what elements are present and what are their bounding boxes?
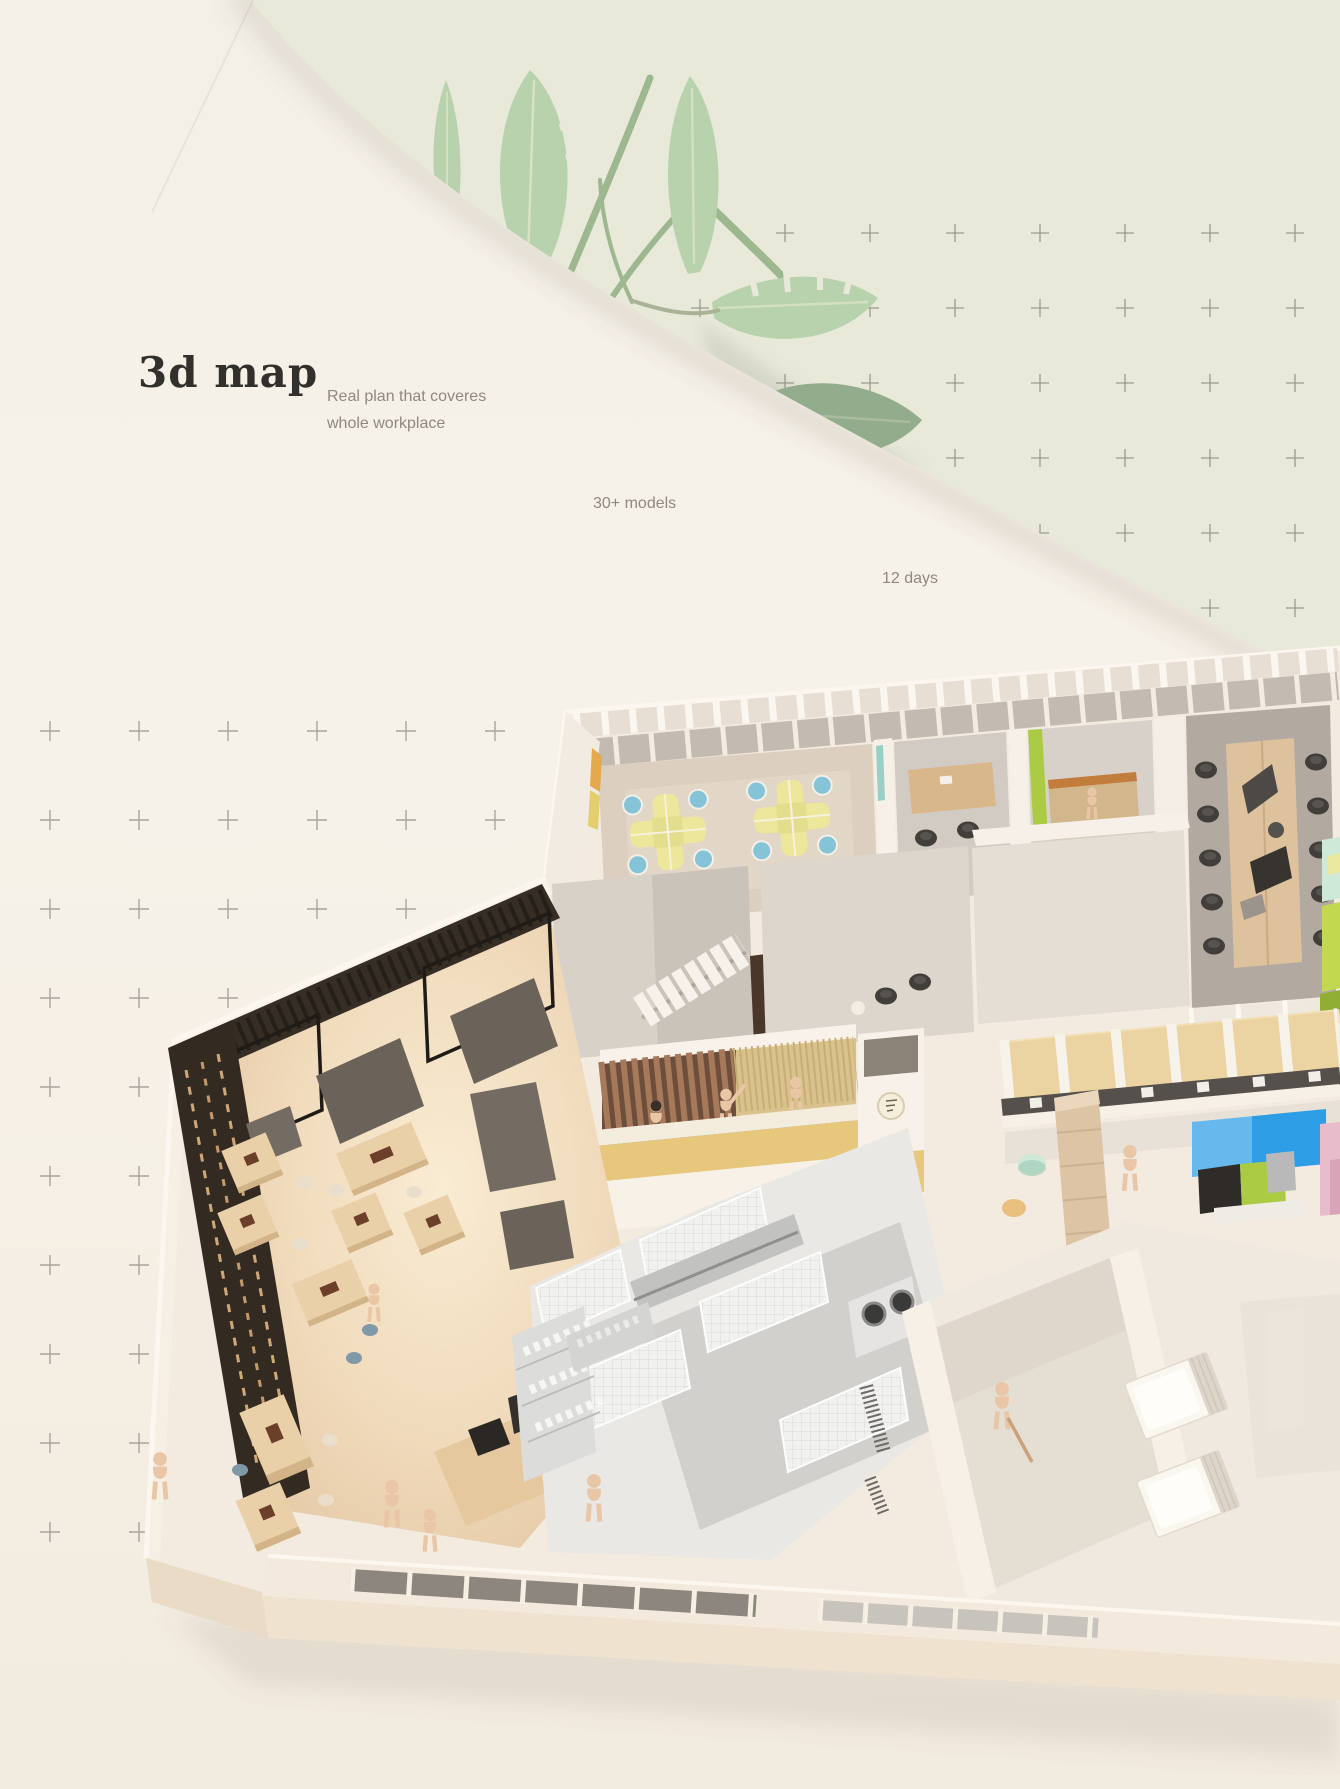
floorplan-3d-render bbox=[146, 648, 1340, 1760]
sage-background-shape bbox=[235, 0, 1340, 700]
stat-models: 30+ models bbox=[593, 495, 676, 513]
diagonal-hairline bbox=[152, 0, 258, 212]
peach-pouf bbox=[1002, 1199, 1026, 1217]
yellow-accent-wall bbox=[588, 790, 600, 830]
orange-accent-wall bbox=[590, 748, 602, 792]
steel-unit bbox=[1266, 1151, 1296, 1193]
booth-sofa bbox=[500, 1200, 574, 1270]
yellow-pillow bbox=[1328, 853, 1340, 875]
page-subtitle: Real plan that coveres whole workplace bbox=[327, 383, 486, 437]
subtitle-line-2: whole workplace bbox=[327, 410, 486, 437]
subtitle-line-1: Real plan that coveres bbox=[327, 383, 486, 410]
stat-days: 12 days bbox=[882, 570, 938, 588]
wood-desk bbox=[908, 762, 996, 814]
page-title: 3d map bbox=[138, 348, 318, 397]
hero-scene bbox=[0, 0, 1340, 1789]
lime-sofa bbox=[1322, 902, 1340, 992]
